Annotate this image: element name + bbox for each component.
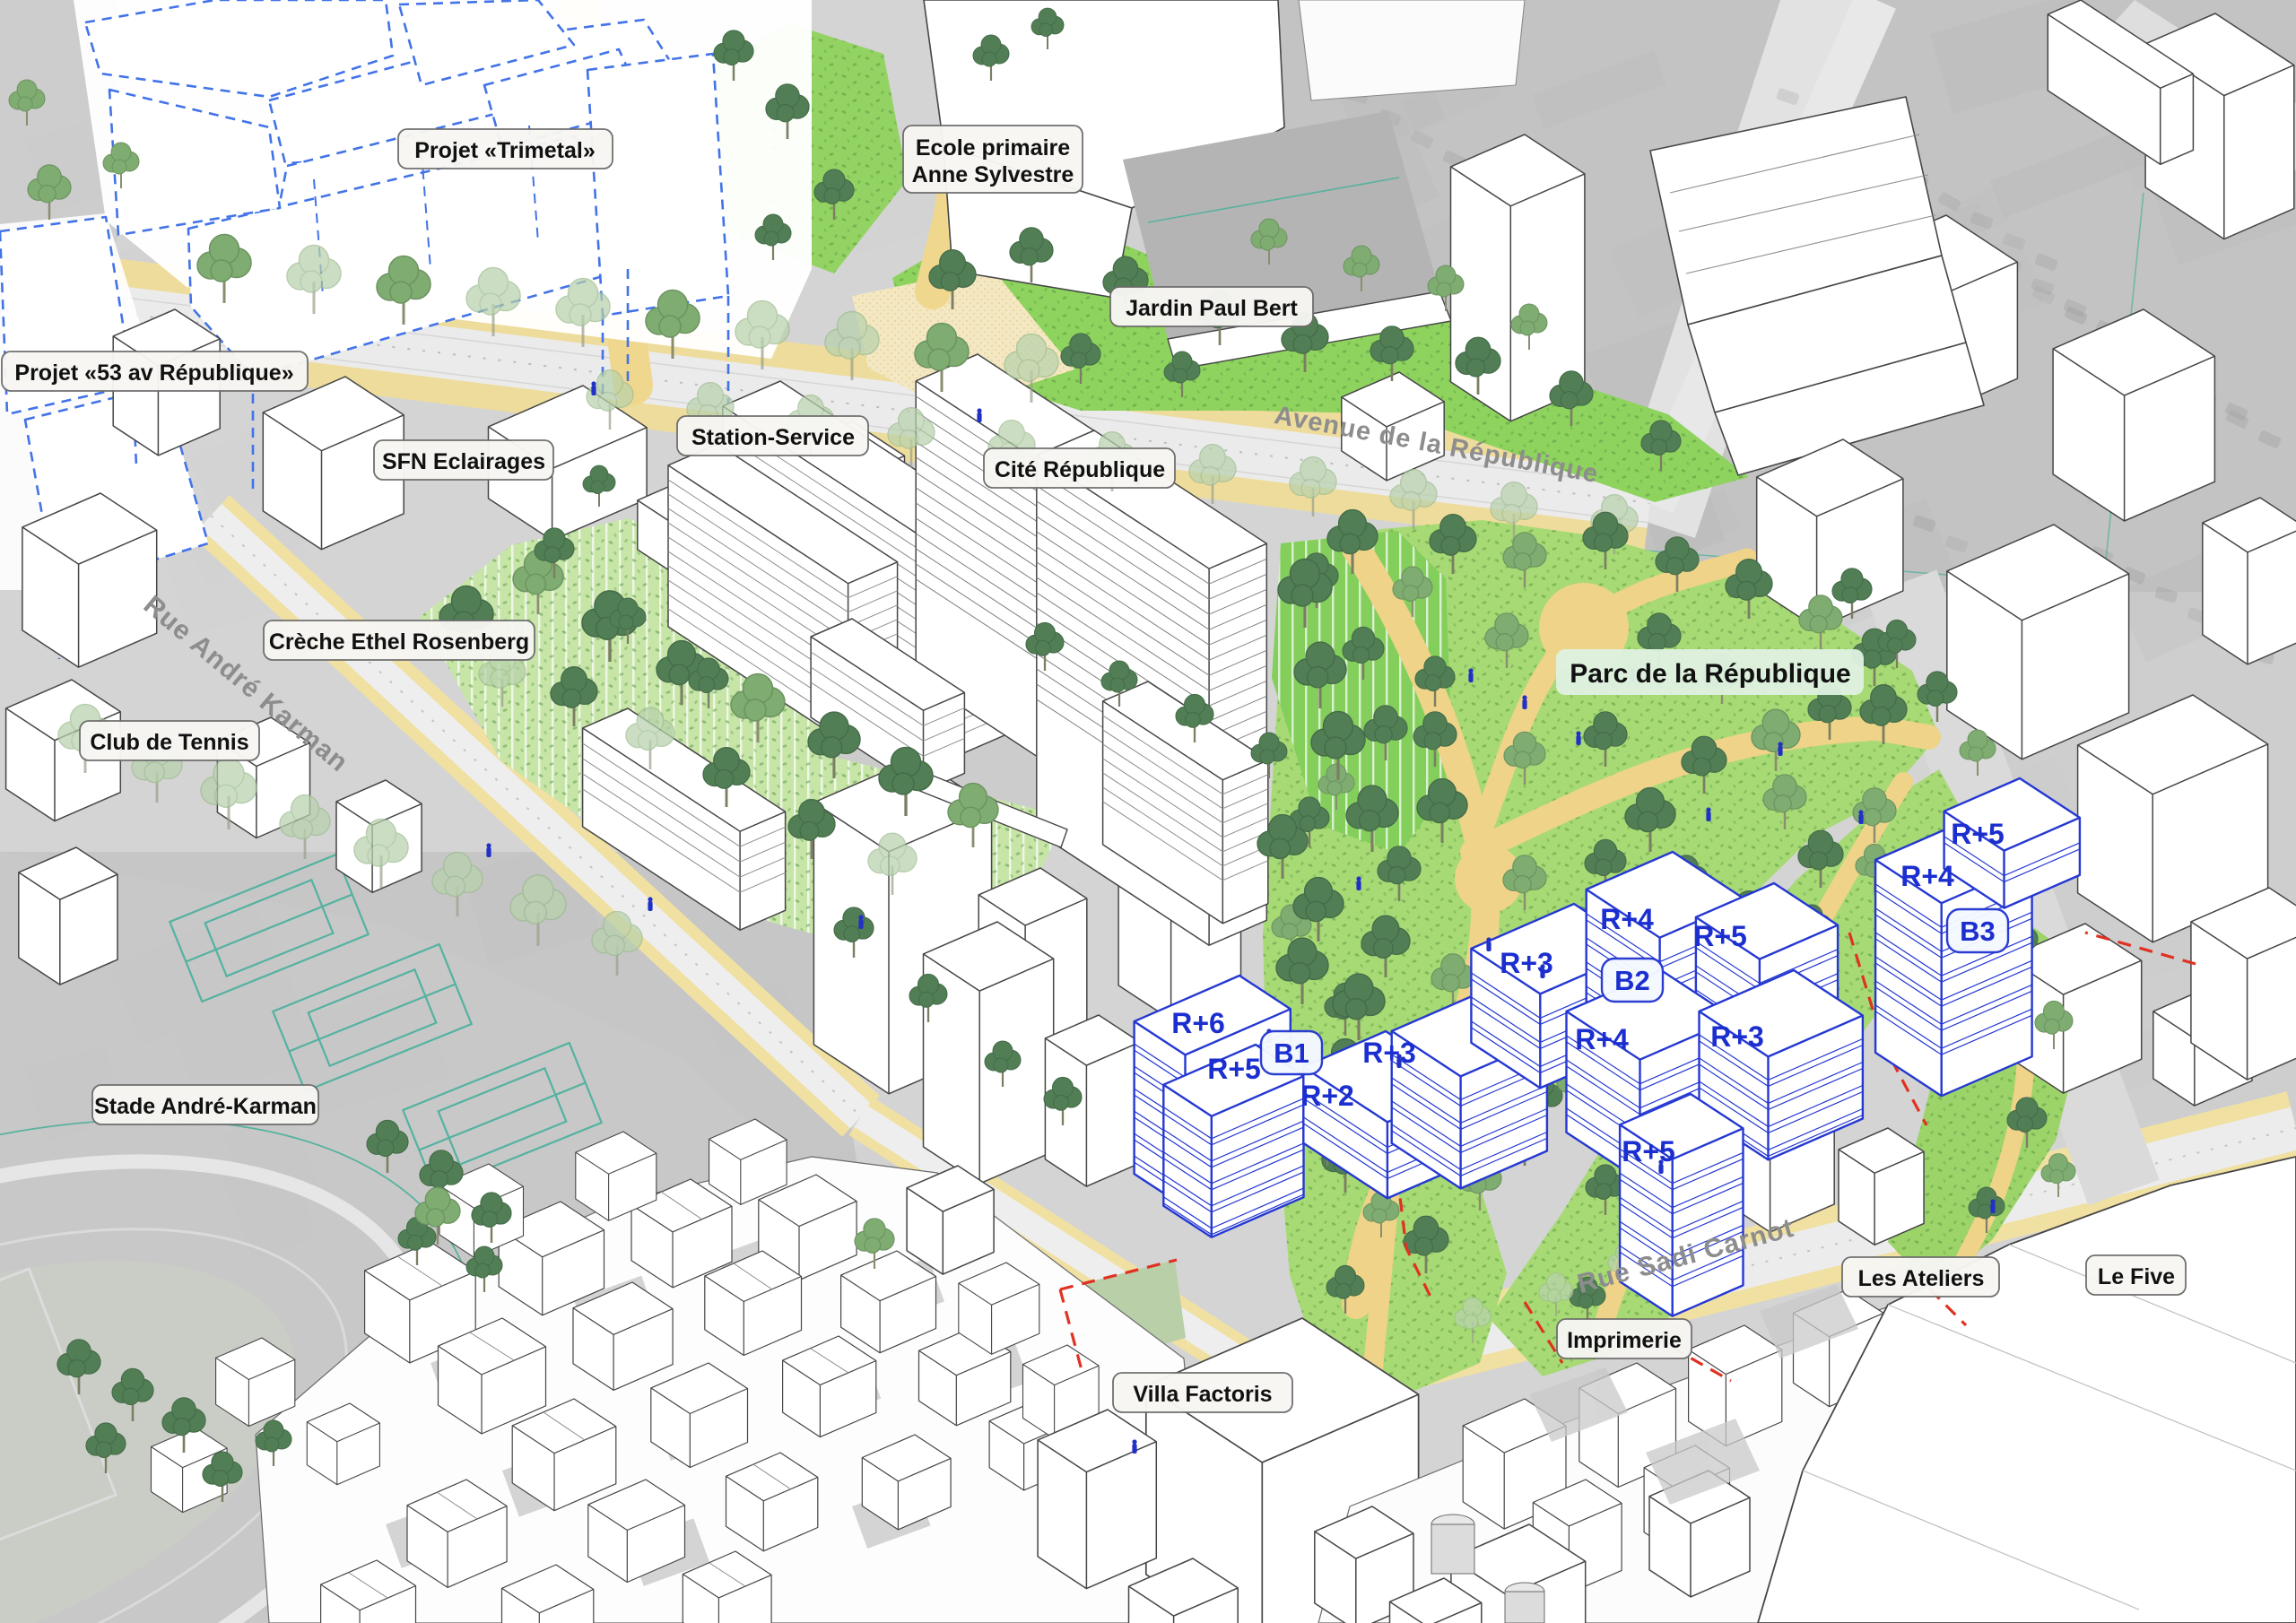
- svg-text:Club de Tennis: Club de Tennis: [90, 730, 248, 755]
- svg-text:R+3: R+3: [1362, 1037, 1416, 1069]
- svg-text:R+5: R+5: [1622, 1135, 1675, 1167]
- svg-text:B1: B1: [1274, 1037, 1309, 1069]
- svg-text:Les Ateliers: Les Ateliers: [1858, 1266, 1985, 1291]
- svg-text:Imprimerie: Imprimerie: [1567, 1328, 1682, 1353]
- svg-text:Stade André-Karman: Stade André-Karman: [94, 1094, 317, 1119]
- svg-text:R+2: R+2: [1300, 1080, 1354, 1112]
- svg-text:Cité République: Cité République: [995, 457, 1165, 482]
- svg-text:R+5: R+5: [1693, 920, 1747, 952]
- svg-text:Jardin Paul Bert: Jardin Paul Bert: [1126, 296, 1298, 321]
- svg-text:R+3: R+3: [1710, 1020, 1764, 1053]
- svg-text:R+3: R+3: [1500, 947, 1553, 979]
- svg-text:R+4: R+4: [1900, 860, 1954, 892]
- svg-text:Projet «Trimetal»: Projet «Trimetal»: [414, 138, 595, 163]
- svg-text:Parc de la République: Parc de la République: [1570, 659, 1850, 689]
- svg-text:Anne Sylvestre: Anne Sylvestre: [912, 162, 1074, 187]
- svg-text:R+4: R+4: [1575, 1023, 1629, 1055]
- svg-text:Projet «53 av République»: Projet «53 av République»: [14, 360, 293, 386]
- svg-text:R+4: R+4: [1600, 903, 1654, 935]
- svg-text:B3: B3: [1960, 916, 1996, 947]
- svg-text:R+6: R+6: [1171, 1007, 1225, 1039]
- svg-text:Villa Factoris: Villa Factoris: [1133, 1382, 1272, 1407]
- svg-text:Station-Service: Station-Service: [691, 425, 855, 450]
- svg-text:Crèche Ethel Rosenberg: Crèche Ethel Rosenberg: [269, 629, 529, 655]
- svg-text:Ecole primaire: Ecole primaire: [916, 135, 1070, 161]
- svg-text:Le Five: Le Five: [2098, 1264, 2175, 1289]
- svg-text:B2: B2: [1614, 965, 1650, 996]
- svg-text:R+5: R+5: [1951, 818, 2005, 850]
- svg-text:R+5: R+5: [1207, 1053, 1261, 1085]
- svg-text:SFN Eclairages: SFN Eclairages: [382, 449, 545, 474]
